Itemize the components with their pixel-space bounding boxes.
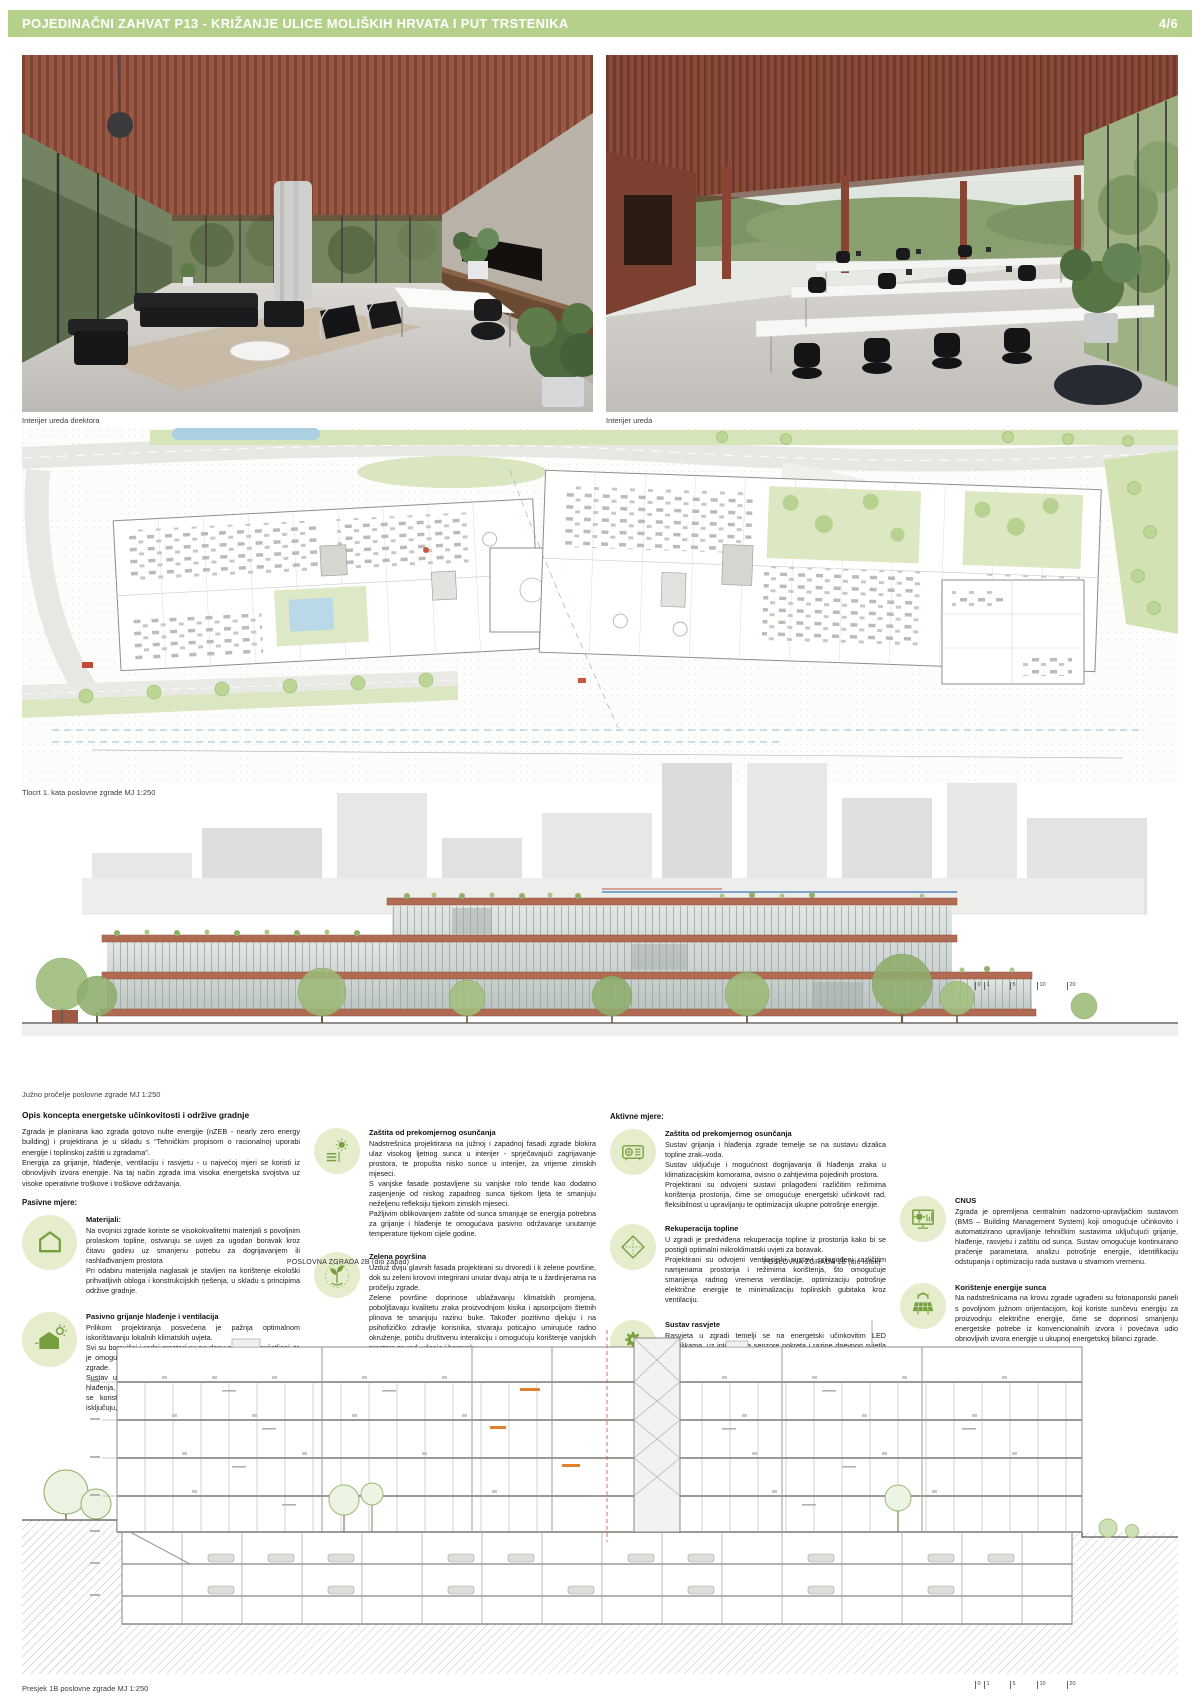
sun-shading-icon [314,1128,360,1174]
rooftop-units [232,1320,872,1347]
elevator-core [634,1338,680,1532]
building-above-ground [117,1320,1082,1542]
page-number: 4/6 [1159,16,1178,31]
basement-levels [122,1532,1072,1624]
item-title: CNUS [955,1196,1178,1205]
coffee-table [230,341,290,361]
south-elevation-drawing [22,758,1178,1058]
scale-tick: 10 [1037,1681,1067,1689]
item-body: Nadstrešnica projektirana na južnoj i za… [369,1139,596,1240]
scale-tick: 5 [1010,982,1037,990]
item-title: Rekuperacija topline [665,1224,886,1233]
panel-header: POJEDINAČNI ZAHVAT P13 - KRIŽANJE ULICE … [8,10,1192,37]
beanbag [1054,365,1142,405]
item-body: Zgrada je opremljena centralnim nadzorno… [955,1207,1178,1267]
concept-title: Opis koncepta energetske učinkovitosti i… [22,1110,300,1120]
scale-tick: 0 [975,1681,984,1689]
item-title: Zaštita od prekomjernog osunčanja [665,1129,886,1138]
scale-tick: 1 [984,982,1010,990]
scale-tick: 1 [984,1681,1010,1689]
section-caption: Presjek 1B poslovne zgrade MJ 1:250 [22,1684,148,1693]
concept-item-materials: Materijali: Na ovojnici zgrade koriste s… [22,1215,300,1296]
render-right-caption: Interijer ureda [606,416,652,425]
building-section-drawing [22,1292,1178,1674]
panel-title: POJEDINAČNI ZAHVAT P13 - KRIŽANJE ULICE … [22,16,569,31]
passive-measures-heading: Pasivne mjere: [22,1198,300,1207]
street-wall [52,1010,78,1023]
render-left-caption: Interijer ureda direktora [22,416,100,425]
concept-item-bms: CNUS Zgrada je opremljena centralnim nad… [900,1196,1178,1267]
house-outline-icon [22,1215,77,1270]
right-glass-wall [1084,95,1178,387]
elevation-caption: Južno pročelje poslovne zgrade MJ 1:250 [22,1090,160,1099]
item-title: Korištenje energije sunca [955,1283,1178,1292]
item-body: Sustav grijanja i hlađenja zgrade temelj… [665,1140,886,1211]
item-title: Zaštita od prekomjernog osunčanja [369,1128,596,1137]
left-building-wing [113,499,540,671]
water-feature [172,428,320,440]
heat-pump-icon [610,1129,656,1175]
scale-tick: 0 [975,982,984,990]
scale-tick: 20 [1067,1681,1075,1689]
floor-plan-drawing [22,428,1178,784]
curtain [274,181,312,301]
annex-block [942,580,1084,684]
heat-recovery-icon [610,1224,656,1270]
pool [289,597,335,631]
active-measures-heading: Aktivne mjere: [610,1112,886,1121]
scale-tick: 5 [1010,1681,1037,1689]
concept-item-shading: Zaštita od prekomjernog osunčanja Nadstr… [314,1128,596,1239]
bms-monitor-icon [900,1196,946,1242]
concept-intro: Zgrada je planirana kao zgrada gotovo nu… [22,1127,300,1189]
scale-tick: 10 [1037,982,1067,990]
section-scale-bar: 0151020 [975,1681,1075,1689]
scale-tick: 20 [1067,982,1075,990]
section-label-east: POSLOVNA ZGRADA 1B (dio istok) [722,1259,922,1266]
render-open-office [606,55,1178,412]
section-label-west: POSLOVNA ZGRADA 2B (dio zapad) [248,1259,448,1266]
elevation-scale-bar: 0151020 [975,982,1075,990]
item-title: Materijali: [86,1215,300,1224]
render-director-office [22,55,593,412]
concept-item-heat-pump: Zaštita od prekomjernog osunčanja Sustav… [610,1129,886,1210]
